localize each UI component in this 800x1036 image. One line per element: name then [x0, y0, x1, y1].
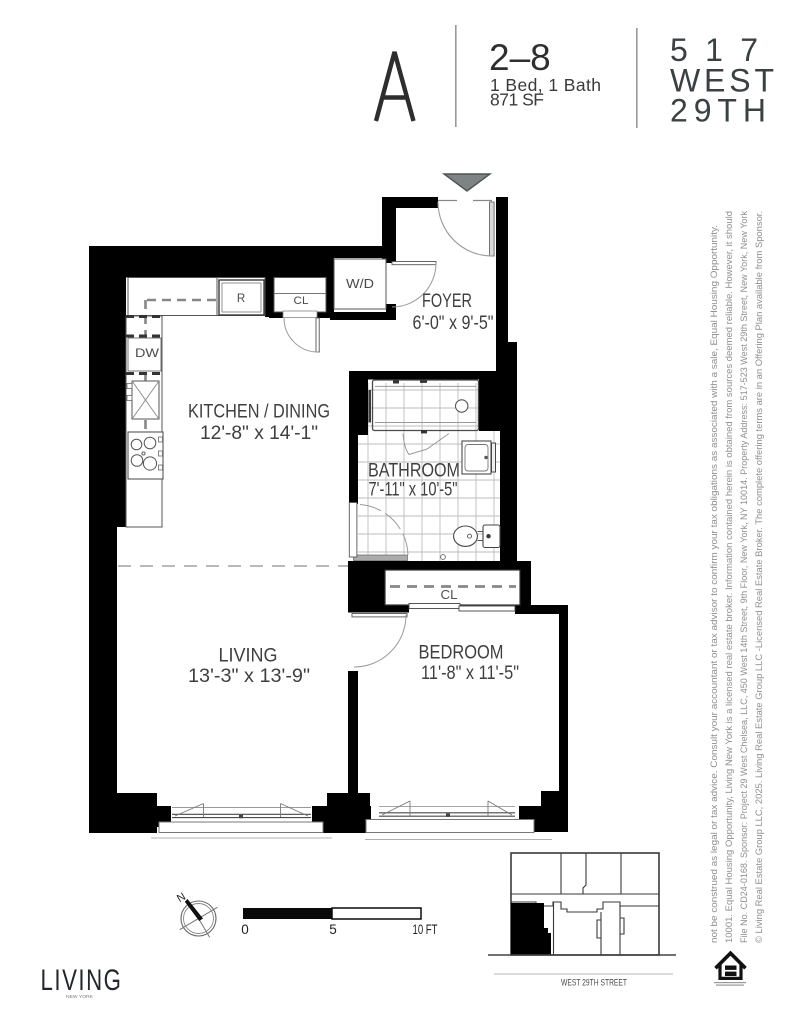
svg-text:KITCHEN / DINING: KITCHEN / DINING — [188, 402, 330, 423]
svg-text:FOYER: FOYER — [422, 291, 472, 312]
svg-text:W/D: W/D — [346, 277, 374, 291]
svg-text:12'-8" x 14'-1": 12'-8" x 14'-1" — [200, 423, 318, 444]
svg-text:10 FT: 10 FT — [413, 922, 438, 937]
svg-text:DW: DW — [135, 348, 159, 360]
svg-text:6'-0" x 9'-5": 6'-0" x 9'-5" — [413, 313, 494, 334]
svg-text:© Living Real Estate Group LLC: © Living Real Estate Group LLC, 2025. Li… — [754, 211, 764, 943]
svg-text:LIVING: LIVING — [41, 964, 123, 997]
svg-text:0: 0 — [241, 922, 249, 937]
svg-text:871 SF: 871 SF — [490, 90, 544, 110]
svg-text:CL: CL — [441, 587, 458, 602]
svg-text:2–8: 2–8 — [489, 37, 551, 78]
svg-text:LIVING: LIVING — [219, 646, 278, 667]
svg-text:10001. Equal Housing Opportuni: 10001. Equal Housing Opportunity, Living… — [724, 211, 734, 943]
svg-text:5: 5 — [329, 922, 337, 937]
svg-text:29TH: 29TH — [670, 93, 766, 129]
svg-text:not be construed as legal or t: not be construed as legal or tax advice.… — [709, 225, 719, 943]
svg-text:BEDROOM: BEDROOM — [419, 643, 504, 664]
svg-text:R: R — [237, 293, 245, 305]
svg-text:13'-3" x 13'-9": 13'-3" x 13'-9" — [188, 666, 310, 687]
svg-text:CL: CL — [294, 295, 309, 307]
svg-text:WEST 29TH STREET: WEST 29TH STREET — [561, 978, 627, 989]
svg-text:7'-11" x 10'-5": 7'-11" x 10'-5" — [369, 480, 458, 501]
svg-text:11'-8" x 11'-5": 11'-8" x 11'-5" — [421, 663, 519, 684]
svg-text:File No. CD24-0168. Sponsor: P: File No. CD24-0168. Sponsor: Project 29 … — [739, 210, 749, 943]
svg-text:BATHROOM: BATHROOM — [368, 461, 460, 482]
svg-text:NEW YORK: NEW YORK — [66, 994, 93, 999]
